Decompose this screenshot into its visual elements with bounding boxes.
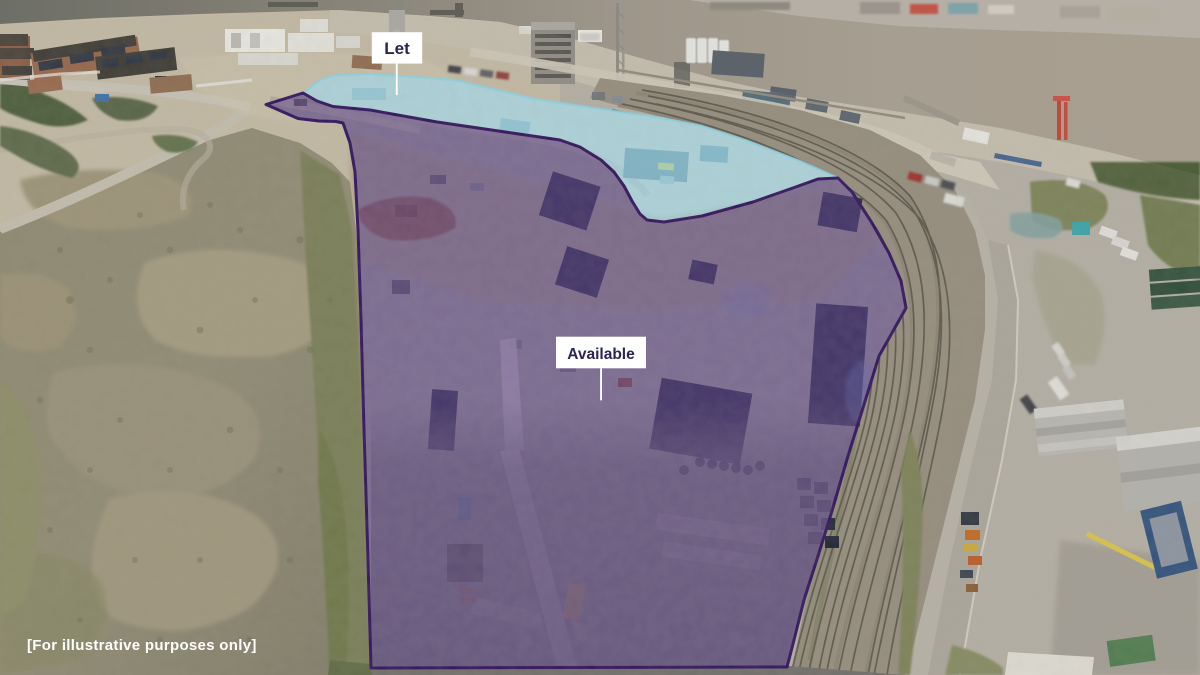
svg-text:[For illustrative purposes onl: [For illustrative purposes only] <box>27 637 257 654</box>
svg-text:Let: Let <box>384 39 410 58</box>
svg-text:Available: Available <box>567 346 635 363</box>
